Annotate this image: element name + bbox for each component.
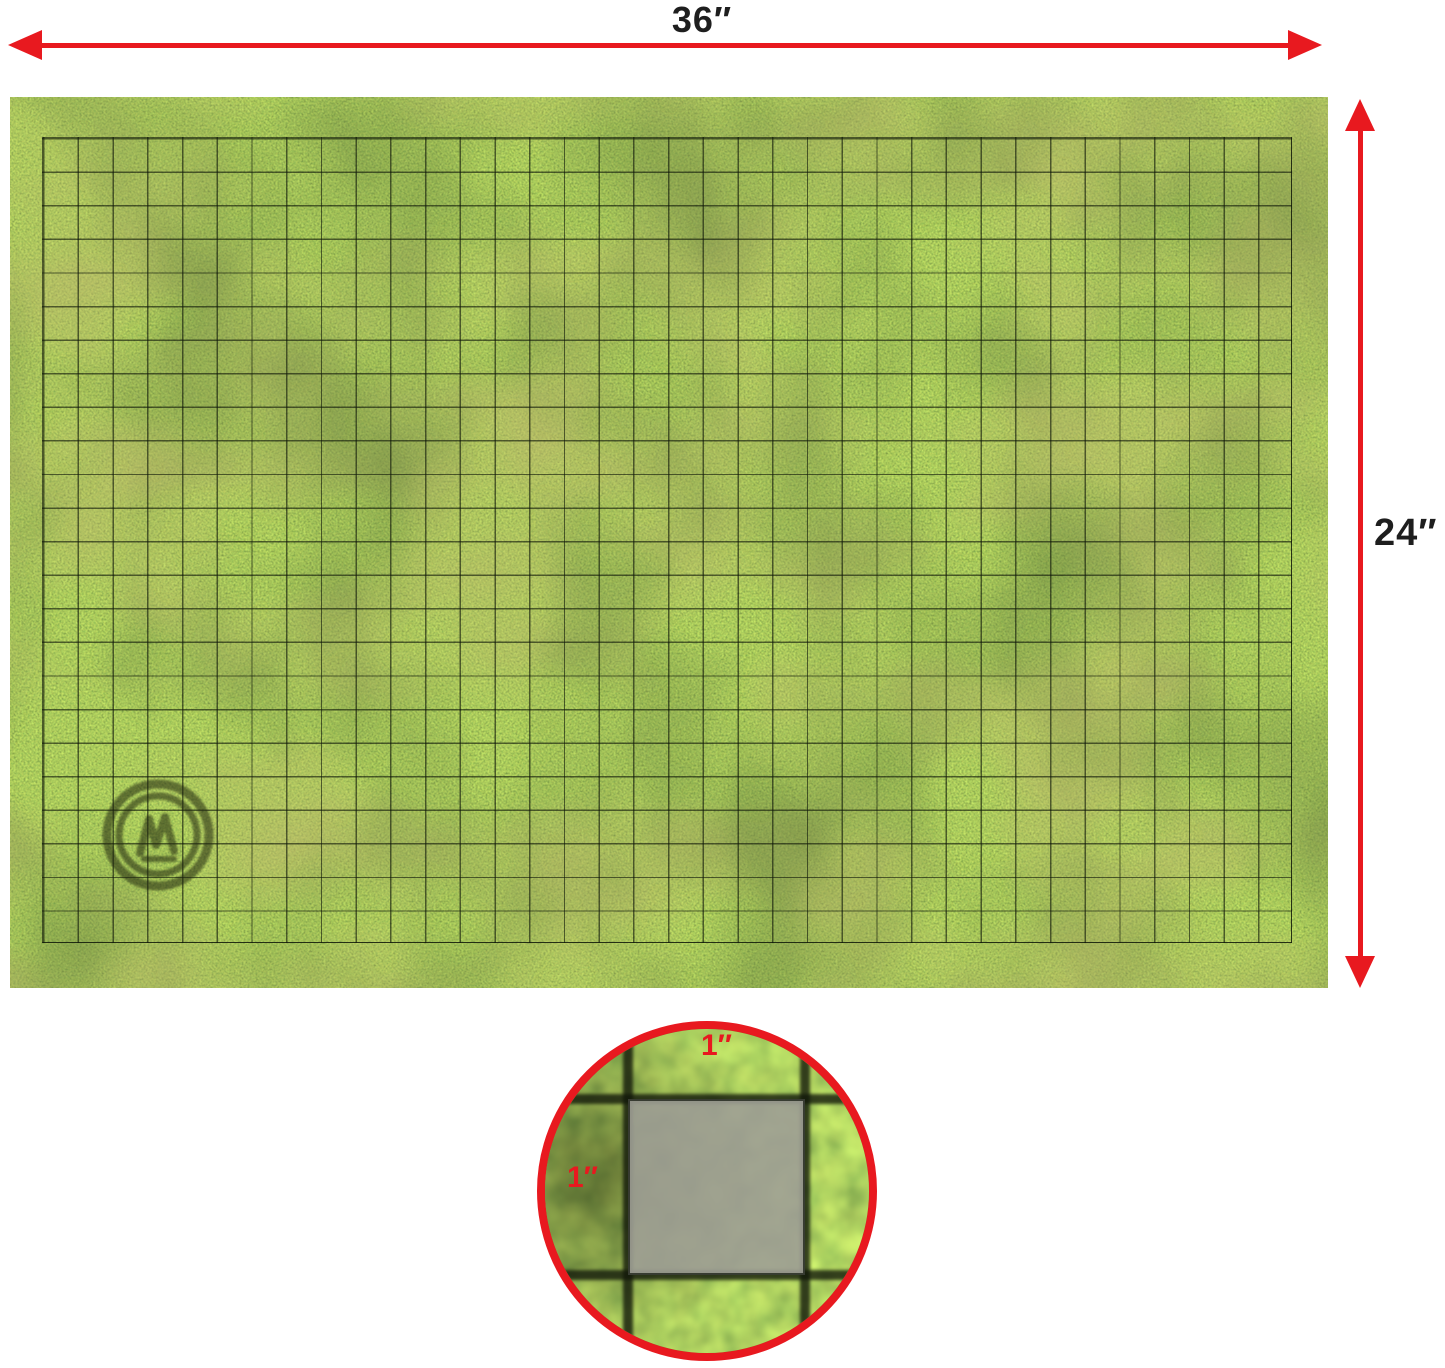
height-dimension-label: 24″ [1374,514,1437,552]
brand-emblem-watermark-icon [98,775,218,895]
width-dimension-arrow [8,29,1322,63]
one-inch-grid-overlay [42,137,1292,943]
battle-mat-dimension-diagram: 36″ [0,0,1445,1368]
grid-scale-inset: 1″ 1″ [537,1021,877,1361]
arrow-down-icon [1345,956,1375,988]
arrow-right-icon [1288,30,1322,60]
grass-battle-mat [10,97,1328,988]
height-dimension-arrow [1342,99,1378,988]
inset-square-width-label: 1″ [701,1031,732,1061]
arrow-shaft [34,43,1296,48]
one-inch-square-highlight [628,1099,805,1275]
inset-square-height-label: 1″ [567,1163,598,1193]
arrow-shaft [1358,125,1363,962]
